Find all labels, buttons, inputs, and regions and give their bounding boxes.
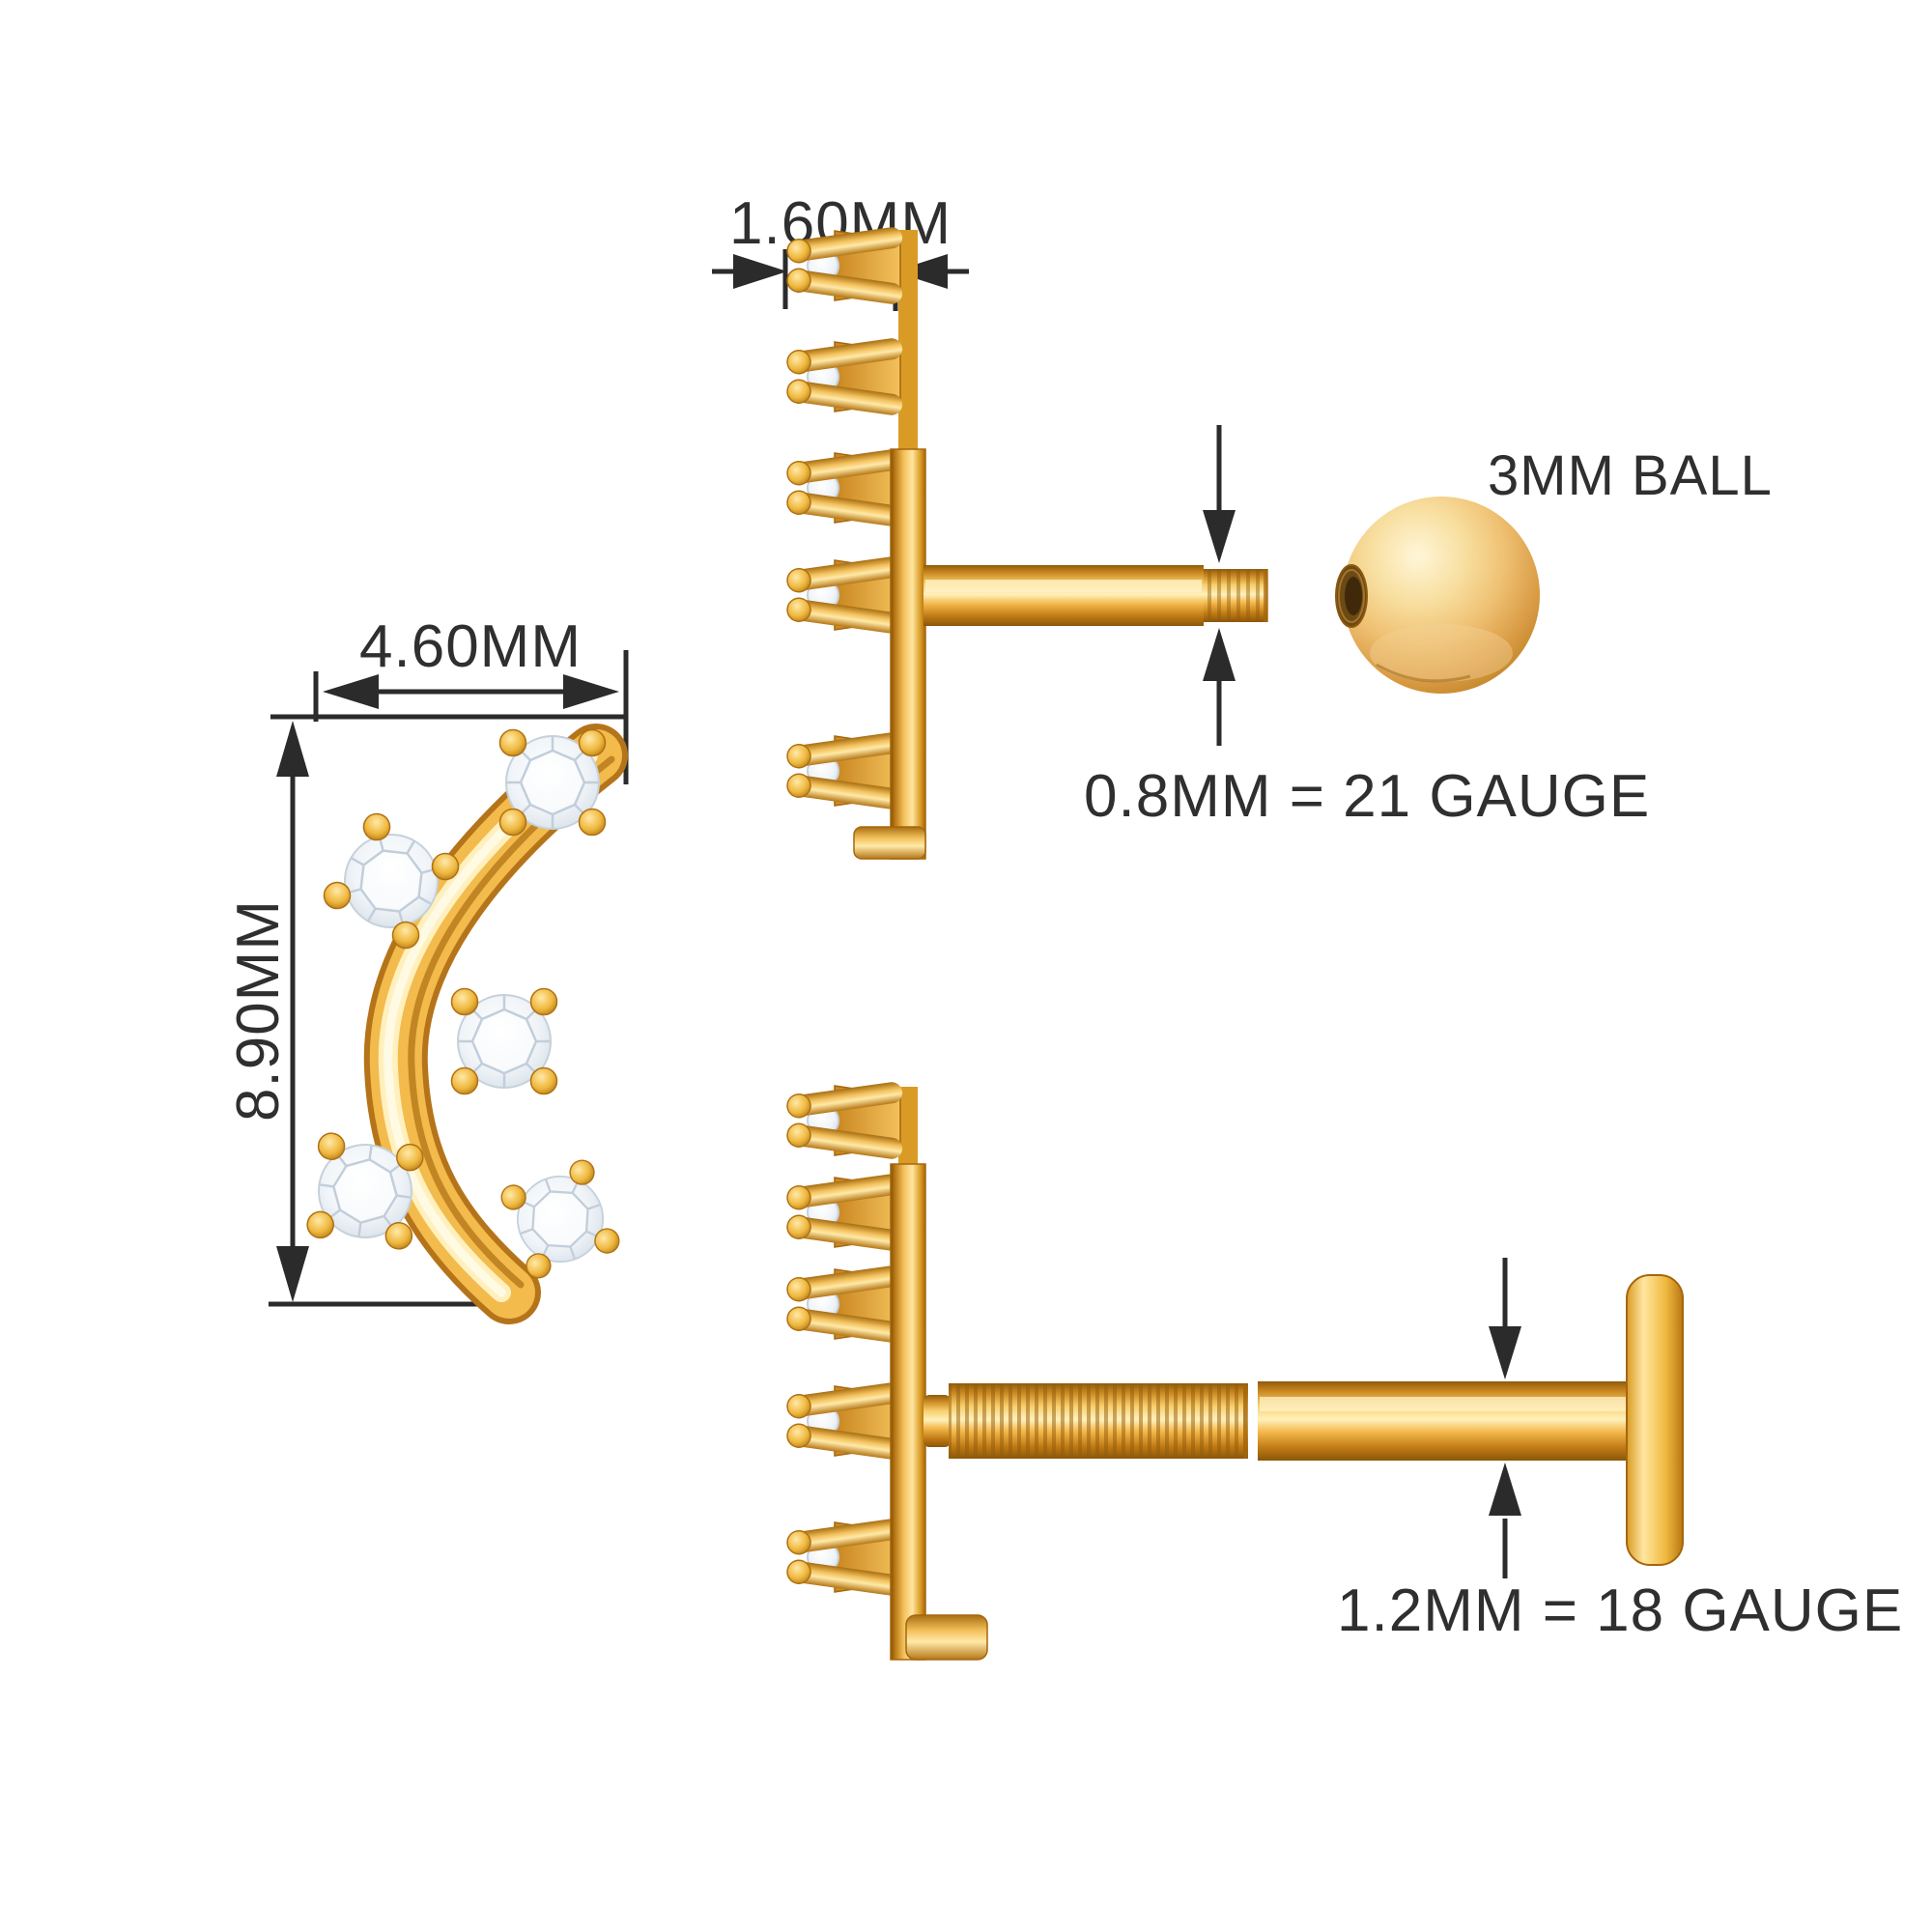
smooth-rod [1258,1381,1629,1461]
labret-disc [1627,1275,1683,1565]
screw-threads [949,1383,1248,1459]
screw-shoulder [923,1395,951,1447]
threaded-screw-18g [923,1383,1248,1459]
ball-label: 3MM BALL [1488,444,1773,507]
threaded-hole-core [1345,577,1362,615]
front-width-label: 4.60MM [359,613,582,680]
back-bar [891,1164,925,1660]
diamond-3 [452,989,557,1094]
bar-foot [906,1615,987,1660]
post-21g [923,565,1268,626]
diagram-canvas: 8.90MM 4.60MM 1.60MM [0,0,1932,1932]
back-bar [891,449,925,859]
labret-gauge-label: 1.2MM = 18 GAUGE [1337,1577,1903,1644]
diamond-1 [500,730,606,836]
back-strip [898,1087,918,1168]
front-height-label: 8.90MM [225,899,292,1122]
post-gauge-label: 0.8MM = 21 GAUGE [1084,763,1650,830]
back-strip [898,230,918,454]
bar-foot [854,827,925,859]
diamond-4 [305,1131,424,1250]
